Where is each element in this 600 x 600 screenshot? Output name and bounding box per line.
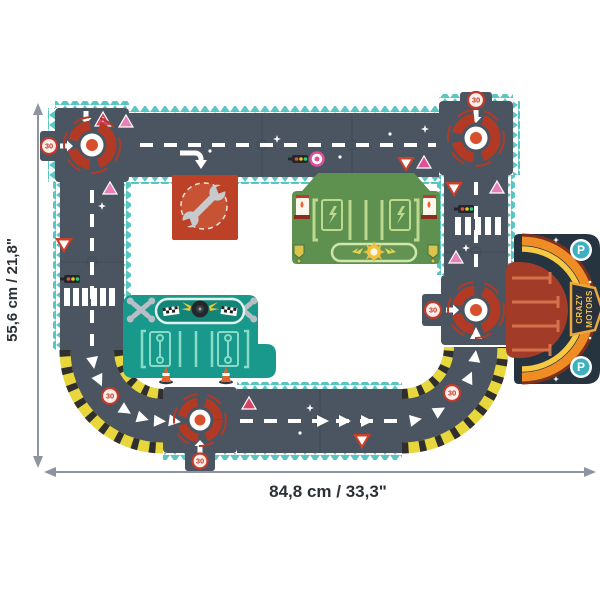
svg-text:30: 30 xyxy=(472,96,480,105)
garage-piece: CRAZY MOTORS P P xyxy=(506,234,600,384)
svg-text:30: 30 xyxy=(429,306,437,315)
gas-pump-icon xyxy=(294,195,310,219)
svg-text:P: P xyxy=(577,360,585,374)
brand-badge: CRAZY MOTORS xyxy=(571,283,600,335)
svg-text:30: 30 xyxy=(45,142,53,151)
svg-text:30: 30 xyxy=(106,392,114,401)
arrow-right-icon xyxy=(584,467,596,477)
arrow-left-icon xyxy=(44,467,56,477)
arrow-down-icon xyxy=(33,456,43,468)
gas-pump-icon xyxy=(421,195,437,219)
product-dimension-diagram: 55,6 cm / 21,8" 84,8 cm / 33,3" xyxy=(0,0,600,600)
arrow-up-icon xyxy=(33,103,43,115)
brand-line2: MOTORS xyxy=(585,290,594,328)
width-dimension-label: 84,8 cm / 33,3" xyxy=(269,482,387,501)
svg-text:30: 30 xyxy=(196,457,204,466)
repair-station-tile xyxy=(172,175,238,240)
brand-line1: CRAZY xyxy=(575,294,584,324)
height-dimension-label: 55,6 cm / 21,8" xyxy=(4,238,21,342)
svg-text:30: 30 xyxy=(448,389,456,398)
pink-circle-sign xyxy=(311,153,324,166)
pit-stop-mat xyxy=(123,295,276,384)
svg-text:P: P xyxy=(577,243,585,257)
charging-station-mat xyxy=(292,173,440,264)
playmat-illustration: 55,6 cm / 21,8" 84,8 cm / 33,3" xyxy=(0,0,600,600)
